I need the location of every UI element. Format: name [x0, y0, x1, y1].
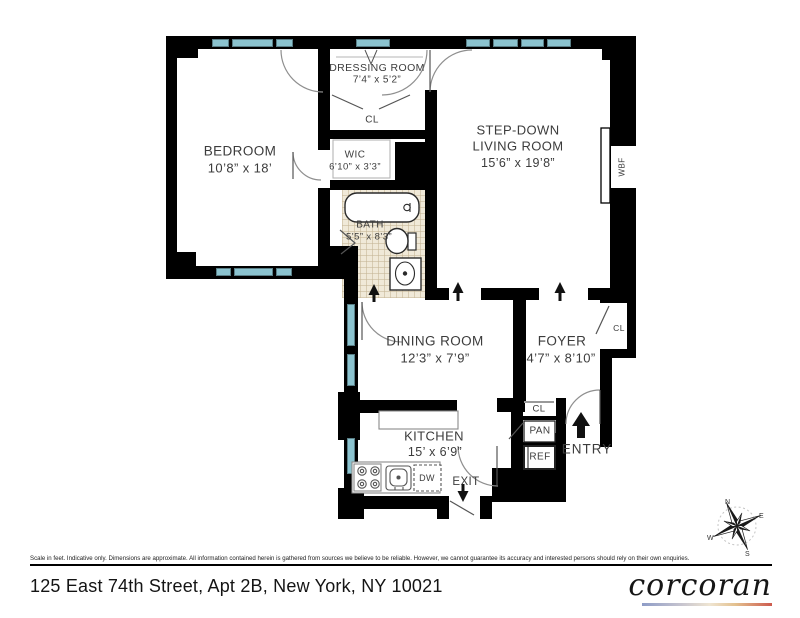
entry-arrow: [572, 412, 590, 438]
exit-label: EXIT: [452, 476, 479, 488]
fireplace-label: WBF: [618, 158, 627, 177]
wall-segment: [344, 496, 444, 509]
fridge-label: REF: [529, 452, 550, 463]
room-label-dining: DINING ROOM: [386, 334, 483, 349]
floor-plan-page: DRESSING ROOM 7’4” x 5’2” CL BEDROOM 10’…: [0, 0, 800, 618]
room-label-wic: WIC: [345, 150, 366, 161]
wall-segment: [318, 246, 358, 279]
wall-segment: [318, 49, 330, 150]
room-label-kitchen: KITCHEN: [404, 429, 464, 444]
plan-overlay: [0, 0, 800, 618]
wall-segment: [492, 468, 566, 502]
window: [276, 268, 292, 276]
foyer-closet-door: [596, 306, 609, 334]
window: [347, 354, 355, 386]
pantry-label: PAN: [529, 426, 550, 437]
wall-segment: [513, 288, 526, 403]
wic-door-arc: [293, 152, 321, 180]
wall-segment: [600, 349, 612, 447]
window: [493, 39, 518, 47]
wall-segment: [481, 288, 539, 300]
kitchen-sink: [386, 466, 411, 490]
wall-segment: [166, 36, 177, 278]
window: [547, 39, 571, 47]
window: [466, 39, 490, 47]
kitchen-counter-top: [379, 411, 458, 429]
wall-segment: [356, 400, 457, 413]
window: [234, 268, 273, 276]
dishwasher-label: DW: [419, 473, 435, 483]
entry-label: ENTRY: [562, 442, 613, 457]
room-label-foyer: FOYER: [538, 334, 587, 349]
room-dims-foyer: 4’7” x 8’10”: [526, 351, 595, 366]
window: [232, 39, 273, 47]
entry-closet-label: CL: [533, 404, 546, 415]
room-label-bath: BATH: [356, 220, 384, 231]
compass-rose-icon: N E S W: [703, 492, 771, 560]
window: [216, 268, 231, 276]
foyer-closet-label: CL: [613, 323, 625, 333]
wall-segment: [330, 130, 425, 139]
compass-w: W: [707, 535, 714, 542]
room-label-living-1: STEP-DOWN: [476, 123, 559, 138]
room-dims-wic: 6’10” x 3’3”: [329, 162, 381, 173]
room-dims-bath: 5’5” x 8’3”: [346, 232, 392, 243]
compass-e: E: [759, 513, 764, 520]
compass-s: S: [745, 551, 750, 558]
wall-segment: [480, 496, 492, 519]
compass-arms: [703, 492, 771, 560]
wall-segment: [425, 90, 437, 288]
window: [356, 39, 390, 47]
entry-door-arc: [566, 390, 600, 424]
dressing-door-left-arc: [281, 50, 323, 92]
compass-n: N: [725, 499, 730, 506]
address-text: 125 East 74th Street, Apt 2B, New York, …: [30, 576, 443, 597]
corcoran-gradient-bar: [642, 603, 772, 606]
wall-segment: [425, 288, 449, 300]
disclaimer-text: Scale in feet. Indicative only. Dimensio…: [30, 555, 689, 562]
room-dims-living: 15’6” x 19’8”: [481, 156, 555, 170]
room-label-living-2: LIVING ROOM: [472, 139, 563, 154]
corcoran-logo: corcoran: [628, 568, 772, 603]
room-dims-kitchen: 15’ x 6’9”: [408, 445, 462, 459]
closet-label: CL: [365, 115, 379, 126]
stove-burners: [358, 467, 379, 488]
room-label-dressing: DRESSING ROOM: [329, 62, 425, 74]
room-label-bedroom: BEDROOM: [204, 144, 277, 159]
window: [521, 39, 544, 47]
stove: [354, 464, 381, 491]
window: [276, 39, 293, 47]
wall-segment: [437, 496, 449, 519]
closet-bifold-doors: [332, 95, 410, 109]
window: [347, 304, 355, 346]
window: [212, 39, 229, 47]
room-dims-bedroom: 10’8” x 18’: [208, 161, 272, 176]
wall-segment: [511, 416, 566, 420]
living-door-arc: [430, 50, 472, 92]
room-dims-dining: 12’3” x 7’9”: [400, 351, 469, 366]
wall-segment: [395, 142, 425, 190]
footer-rule: [30, 564, 772, 566]
room-dims-dressing: 7’4” x 5’2”: [353, 75, 401, 86]
wall-segment: [511, 398, 523, 470]
window: [347, 438, 355, 474]
exit-door: [450, 501, 474, 515]
